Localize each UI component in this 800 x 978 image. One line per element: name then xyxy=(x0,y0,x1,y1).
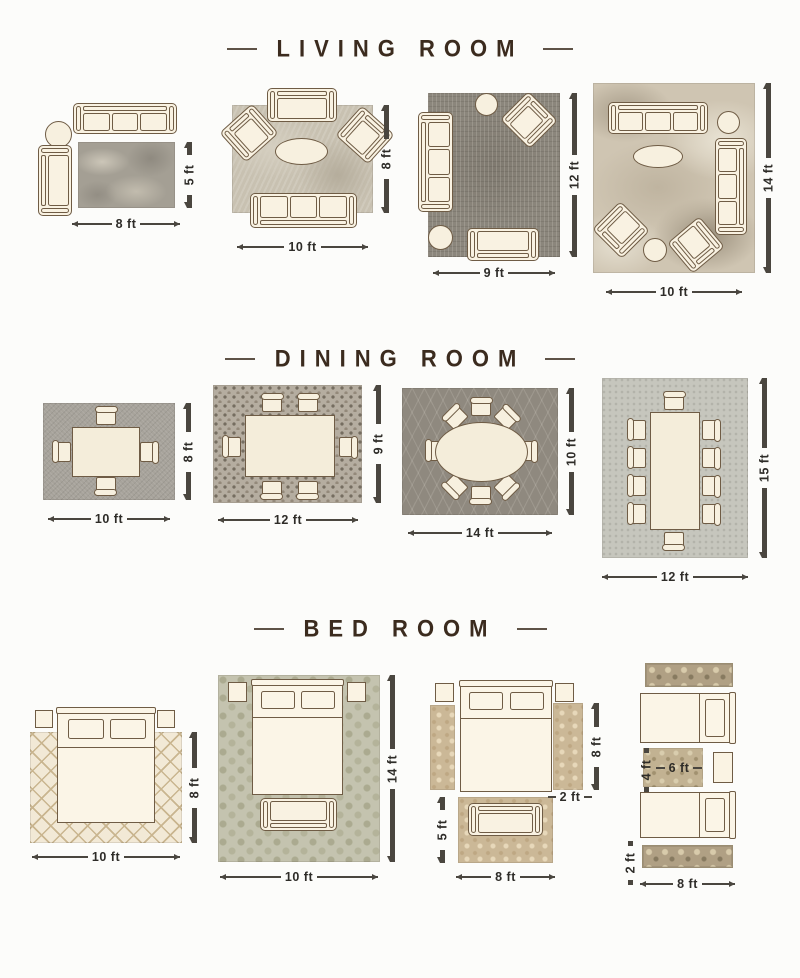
rug-height-label: 5 ft xyxy=(434,797,450,863)
dining-table xyxy=(72,427,140,477)
chaise-sofa xyxy=(38,145,72,216)
dining-chair xyxy=(630,448,646,468)
runner-rug xyxy=(553,703,583,790)
dining-chair xyxy=(262,481,282,497)
dining-chair xyxy=(664,394,684,410)
dining-room-layout-4: 12 ft 15 ft xyxy=(598,378,788,588)
round-side-table xyxy=(475,93,498,116)
runner-rug xyxy=(642,845,733,868)
dining-chair xyxy=(96,409,116,425)
bed xyxy=(252,682,343,795)
nightstand xyxy=(228,682,247,702)
dining-chair xyxy=(471,400,491,416)
dining-chair xyxy=(471,486,491,502)
rug-height-label: 14 ft xyxy=(384,675,400,862)
bed xyxy=(57,710,155,823)
title-dash-left xyxy=(254,628,284,630)
rug-height-label: 14 ft xyxy=(760,83,776,273)
runner-width-label: 2 ft xyxy=(622,841,638,871)
loveseat-sofa xyxy=(468,803,543,836)
section-title-text: DINING ROOM xyxy=(275,345,526,373)
runner-rug xyxy=(430,705,455,790)
title-dash-right xyxy=(543,48,573,50)
dining-chair xyxy=(702,448,718,468)
twin-bed xyxy=(640,792,733,838)
dining-room-layout-1: 10 ft 8 ft xyxy=(28,395,203,530)
nightstand xyxy=(555,683,574,702)
round-side-table xyxy=(717,111,740,134)
rug-width-label: 10 ft xyxy=(237,240,368,254)
twin-bed xyxy=(640,693,733,743)
living-room-layout-4: 10 ft 14 ft xyxy=(588,78,793,313)
title-dash-right xyxy=(545,358,575,360)
round-ottoman xyxy=(428,225,453,250)
loveseat-sofa xyxy=(267,88,337,122)
rug-height-label: 8 ft xyxy=(180,403,196,500)
round-side-table xyxy=(45,121,72,148)
oval-coffee-table xyxy=(275,138,328,165)
dining-chair xyxy=(55,442,71,462)
rug-height-label: 9 ft xyxy=(370,385,386,503)
rug-width-label: 12 ft xyxy=(602,570,748,584)
three-seat-sofa xyxy=(73,103,177,134)
section-title-living-room: LIVING ROOM xyxy=(0,36,800,62)
rug-width-label: 10 ft xyxy=(220,870,378,884)
title-dash-left xyxy=(227,48,257,50)
rug-width-label: 14 ft xyxy=(408,526,552,540)
rug-height-label: 12 ft xyxy=(566,93,582,257)
round-ottoman xyxy=(643,238,667,262)
title-dash-right xyxy=(517,628,547,630)
dining-chair xyxy=(298,396,318,412)
area-rug xyxy=(78,142,175,208)
oval-coffee-table xyxy=(633,145,683,168)
dining-chair xyxy=(702,504,718,524)
rug-height-label: 8 ft xyxy=(186,732,202,843)
dining-table xyxy=(650,412,700,530)
dining-chair xyxy=(664,532,684,548)
rug-width-label: 10 ft xyxy=(48,512,170,526)
dining-chair xyxy=(262,396,282,412)
three-seat-sofa xyxy=(608,102,708,134)
rug-width-label: 10 ft xyxy=(32,850,180,864)
dining-chair xyxy=(702,476,718,496)
nightstand xyxy=(347,682,366,702)
nightstand xyxy=(157,710,175,728)
bed-room-layout-2: 10 ft 14 ft xyxy=(212,668,402,888)
section-title-bed-room: BED ROOM xyxy=(0,616,800,642)
nightstand xyxy=(35,710,53,728)
rug-height-label: 10 ft xyxy=(563,388,579,515)
rug-width-label: 12 ft xyxy=(218,513,358,527)
dining-chair xyxy=(702,420,718,440)
nightstand xyxy=(435,683,454,702)
rug-width-label: 10 ft xyxy=(606,285,742,299)
bed-room-layout-3: 8 ft 2 ft 5 ft 8 ft xyxy=(428,680,618,885)
rug-width-label: 8 ft xyxy=(72,217,180,231)
dining-chair xyxy=(339,437,355,457)
rug-width-label: 9 ft xyxy=(433,266,555,280)
rug-size-guide-infographic: LIVING ROOM 8 ft 5 ft 10 ft 8 ft 9 ft 12… xyxy=(0,0,800,978)
oval-dining-table xyxy=(435,422,528,482)
dining-room-layout-2: 12 ft 9 ft xyxy=(210,385,400,535)
dining-table xyxy=(245,415,335,477)
bed xyxy=(460,683,552,792)
section-title-dining-room: DINING ROOM xyxy=(0,346,800,372)
living-room-layout-1: 8 ft 5 ft xyxy=(28,95,213,245)
dining-chair xyxy=(96,477,116,493)
living-room-layout-2: 10 ft 8 ft xyxy=(215,85,410,260)
bed-room-layout-4: 4 ft 6 ft 2 ft 8 ft xyxy=(622,655,797,895)
rug-height-label: 8 ft xyxy=(378,105,394,213)
runner-length-label: 8 ft xyxy=(588,703,604,790)
loveseat-sofa xyxy=(467,228,539,261)
rug-width-label: 8 ft xyxy=(456,870,555,884)
title-dash-left xyxy=(225,358,255,360)
nightstand xyxy=(713,752,733,783)
runner-length-label: 8 ft xyxy=(640,877,735,891)
dining-chair xyxy=(630,476,646,496)
living-room-layout-3: 9 ft 12 ft xyxy=(408,88,593,293)
runner-width-label: 2 ft xyxy=(548,790,592,804)
runner-rug xyxy=(645,663,733,687)
dining-chair xyxy=(140,442,156,462)
dining-chair xyxy=(630,504,646,524)
rug-height-label: 5 ft xyxy=(181,142,197,208)
three-seat-sofa xyxy=(250,193,357,228)
bedroom-bench xyxy=(260,798,337,831)
dining-room-layout-3: 14 ft 10 ft xyxy=(400,388,590,543)
dining-chair xyxy=(298,481,318,497)
between-rug-height-label: 4 ft xyxy=(638,748,654,787)
dining-chair xyxy=(630,420,646,440)
dining-chair xyxy=(225,437,241,457)
three-seat-sofa xyxy=(715,138,747,235)
section-title-text: LIVING ROOM xyxy=(277,35,524,63)
section-title-text: BED ROOM xyxy=(304,615,497,643)
bed-room-layout-1: 10 ft 8 ft xyxy=(22,700,207,865)
rug-height-label: 15 ft xyxy=(756,378,772,558)
three-seat-sofa xyxy=(418,112,453,212)
between-rug-width-label: 6 ft xyxy=(656,761,702,775)
